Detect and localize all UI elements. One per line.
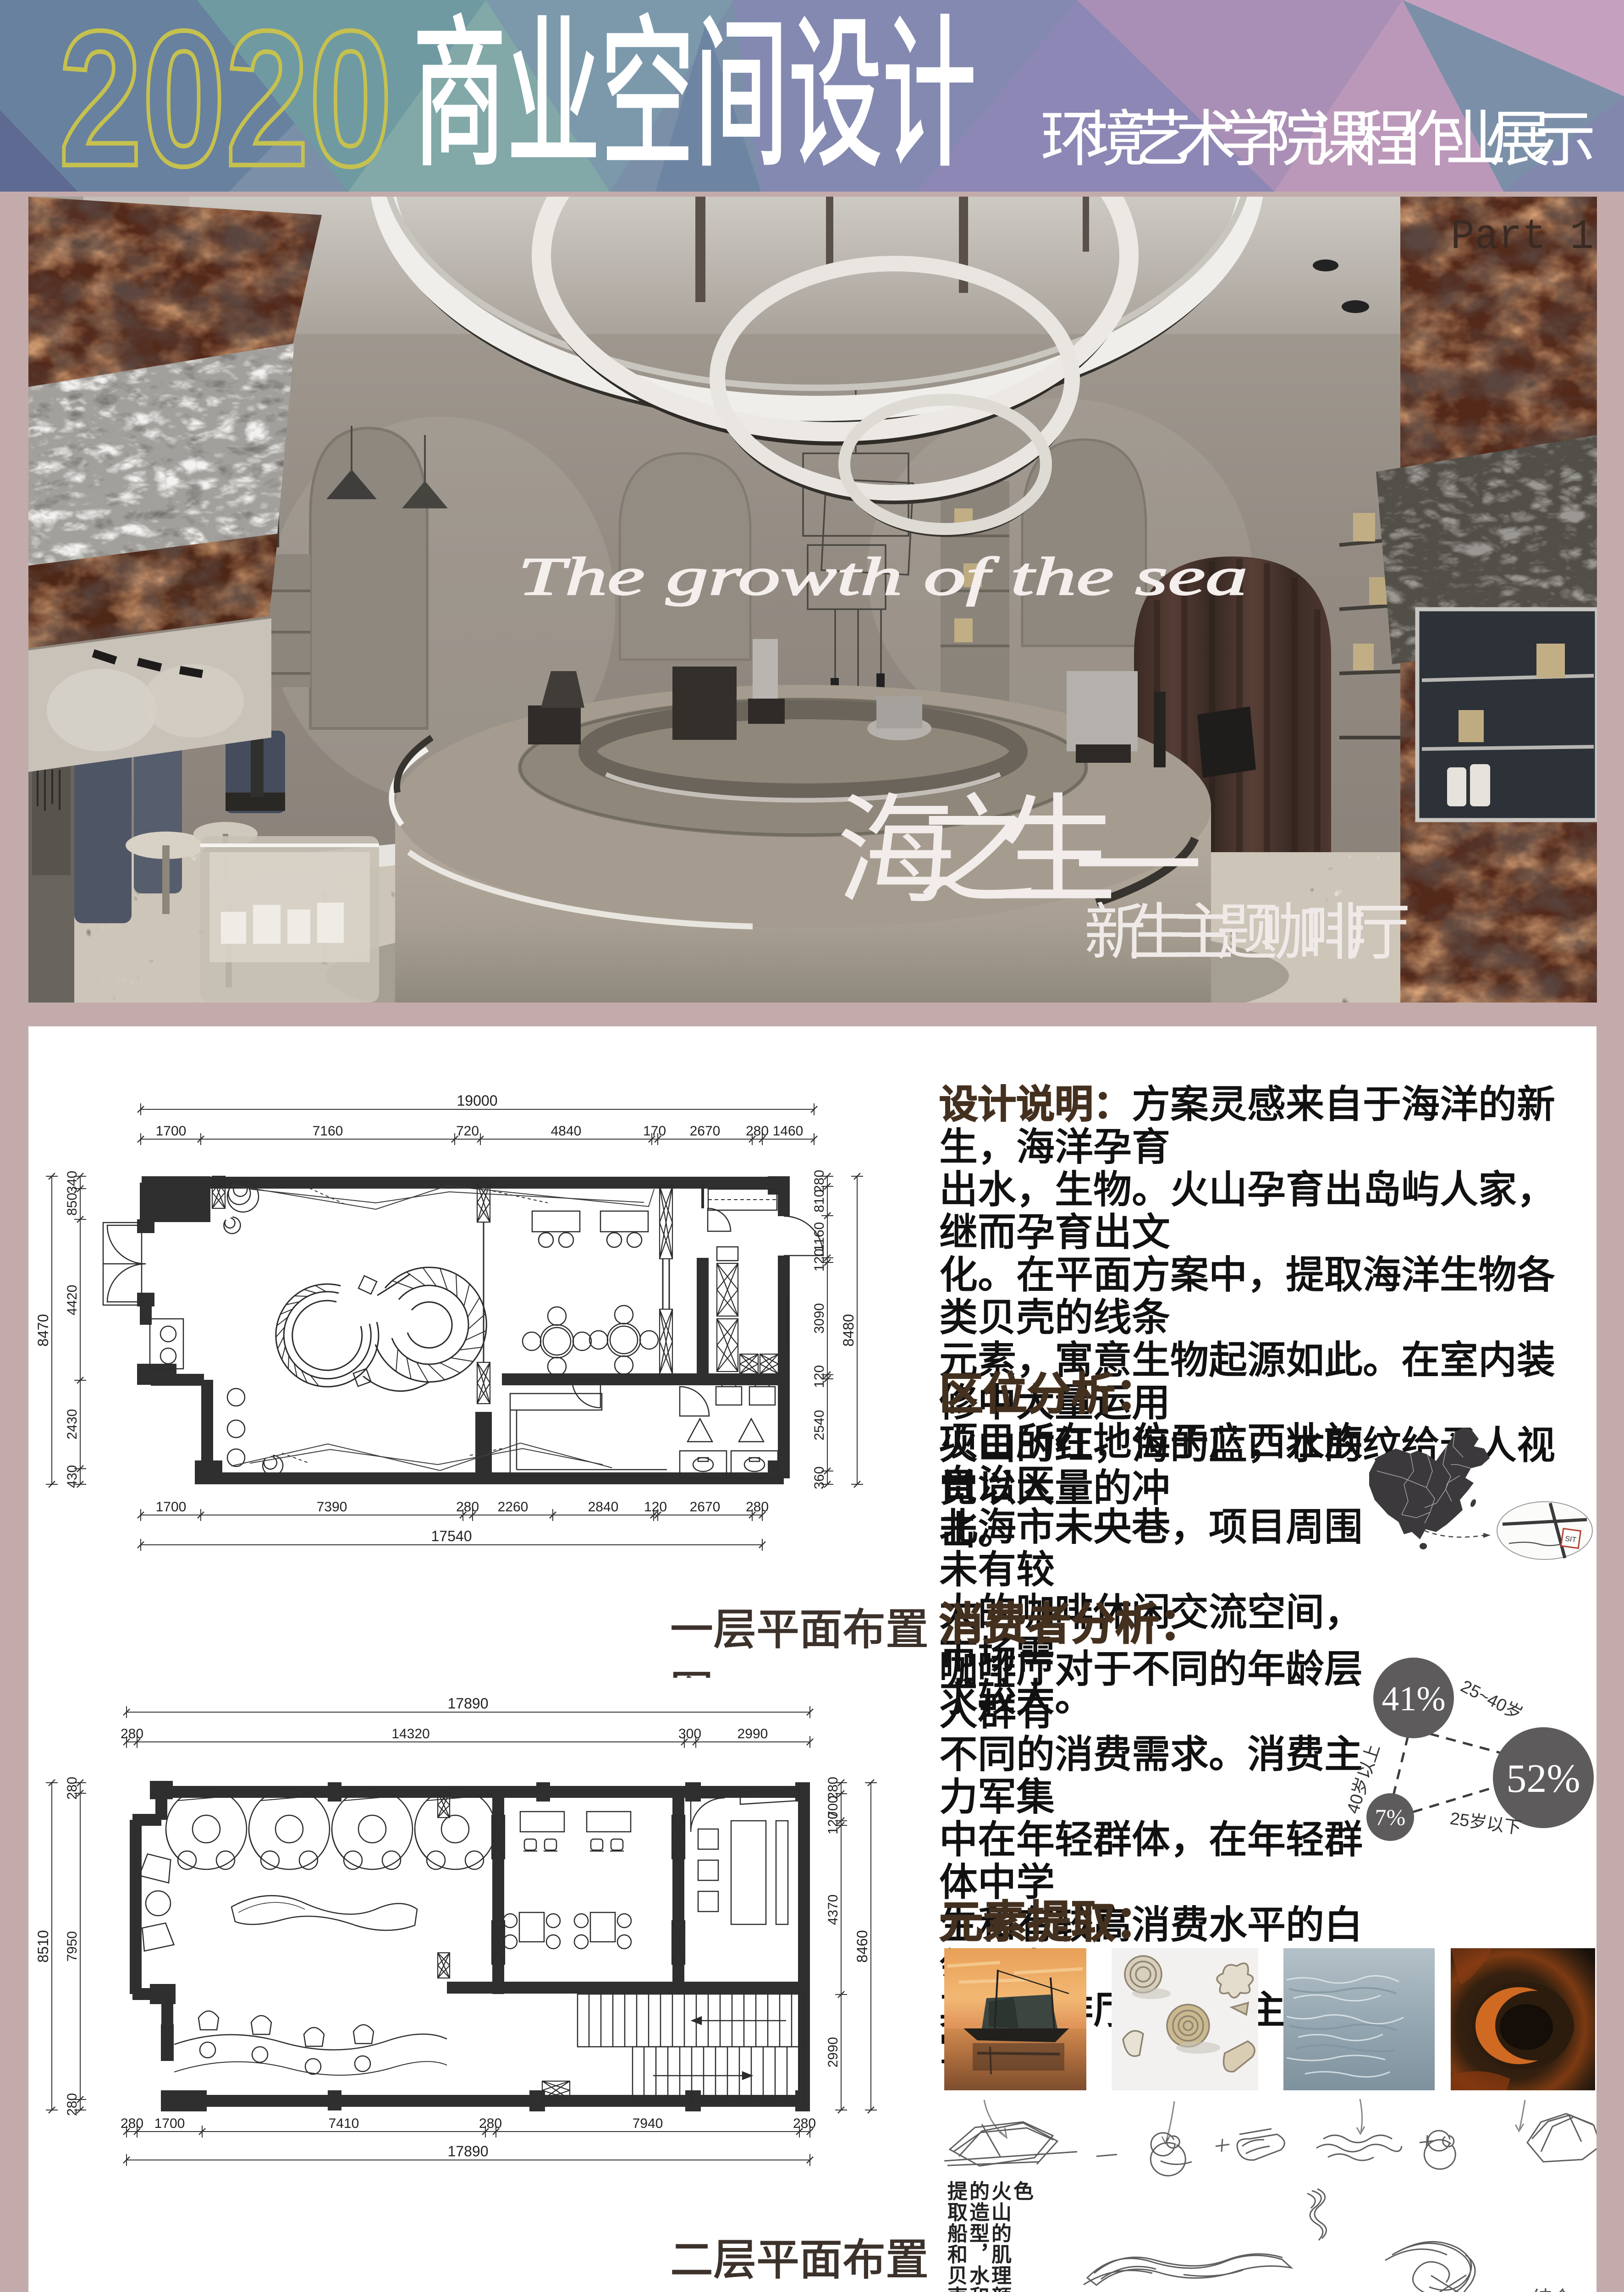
svg-text:Part 1: Part 1 xyxy=(1451,213,1594,261)
svg-text:41%: 41% xyxy=(1382,1680,1445,1718)
svg-text:360: 360 xyxy=(812,1466,827,1489)
svg-text:1460: 1460 xyxy=(773,1124,804,1139)
svg-text:280: 280 xyxy=(746,1124,769,1139)
svg-text:2260: 2260 xyxy=(498,1499,528,1515)
svg-text:810: 810 xyxy=(812,1190,827,1212)
svg-text:1700: 1700 xyxy=(156,1499,187,1515)
svg-text:280: 280 xyxy=(121,1726,143,1741)
svg-text:4370: 4370 xyxy=(826,1895,841,1925)
svg-text:2540: 2540 xyxy=(812,1410,827,1441)
svg-text:8470: 8470 xyxy=(35,1314,51,1346)
svg-text:25~40岁: 25~40岁 xyxy=(1458,1677,1525,1724)
svg-text:2670: 2670 xyxy=(690,1499,721,1515)
svg-text:7%: 7% xyxy=(1375,1804,1406,1830)
svg-text:3090: 3090 xyxy=(812,1303,827,1334)
svg-text:17540: 17540 xyxy=(431,1528,472,1544)
svg-text:52%: 52% xyxy=(1506,1757,1580,1801)
svg-text:环境艺术学院课程作业展示: 环境艺术学院课程作业展示 xyxy=(1040,105,1596,174)
svg-text:The growth of the sea: The growth of the sea xyxy=(518,546,1248,606)
svg-text:280: 280 xyxy=(812,1170,827,1193)
svg-text:340: 340 xyxy=(65,1171,80,1194)
svg-text:120: 120 xyxy=(812,1365,827,1388)
svg-text:120: 120 xyxy=(812,1249,827,1272)
svg-text:280: 280 xyxy=(746,1499,769,1515)
svg-text:7160: 7160 xyxy=(313,1124,343,1139)
svg-text:结合: 结合 xyxy=(1532,2287,1572,2292)
svg-text:280: 280 xyxy=(456,1499,479,1515)
svg-text:430: 430 xyxy=(65,1465,80,1488)
svg-text:4420: 4420 xyxy=(65,1285,80,1316)
svg-text:2840: 2840 xyxy=(588,1499,619,1515)
svg-text:280: 280 xyxy=(65,1777,80,1800)
svg-text:8480: 8480 xyxy=(840,1314,857,1346)
svg-text:300: 300 xyxy=(678,1726,701,1741)
svg-text:1700: 1700 xyxy=(156,1124,187,1139)
svg-text:120: 120 xyxy=(644,1499,667,1515)
svg-text:850: 850 xyxy=(65,1193,80,1216)
svg-text:720: 720 xyxy=(456,1124,479,1139)
svg-text:170: 170 xyxy=(643,1124,666,1139)
svg-text:19000: 19000 xyxy=(457,1092,498,1109)
svg-text:SIT: SIT xyxy=(1564,1535,1577,1544)
svg-text:新生主题咖啡厅: 新生主题咖啡厅 xyxy=(1084,898,1410,967)
svg-text:14320: 14320 xyxy=(391,1726,429,1741)
svg-text:7390: 7390 xyxy=(317,1499,347,1515)
svg-text:2990: 2990 xyxy=(738,1726,768,1741)
svg-text:1160: 1160 xyxy=(812,1222,827,1252)
svg-text:120: 120 xyxy=(826,1812,841,1835)
svg-text:2670: 2670 xyxy=(690,1124,721,1139)
svg-text:17890: 17890 xyxy=(448,1695,489,1712)
svg-text:2430: 2430 xyxy=(65,1409,80,1440)
svg-text:4840: 4840 xyxy=(551,1124,582,1139)
svg-text:商业空间设计: 商业空间设计 xyxy=(413,5,976,186)
svg-text:2020: 2020 xyxy=(59,0,392,192)
